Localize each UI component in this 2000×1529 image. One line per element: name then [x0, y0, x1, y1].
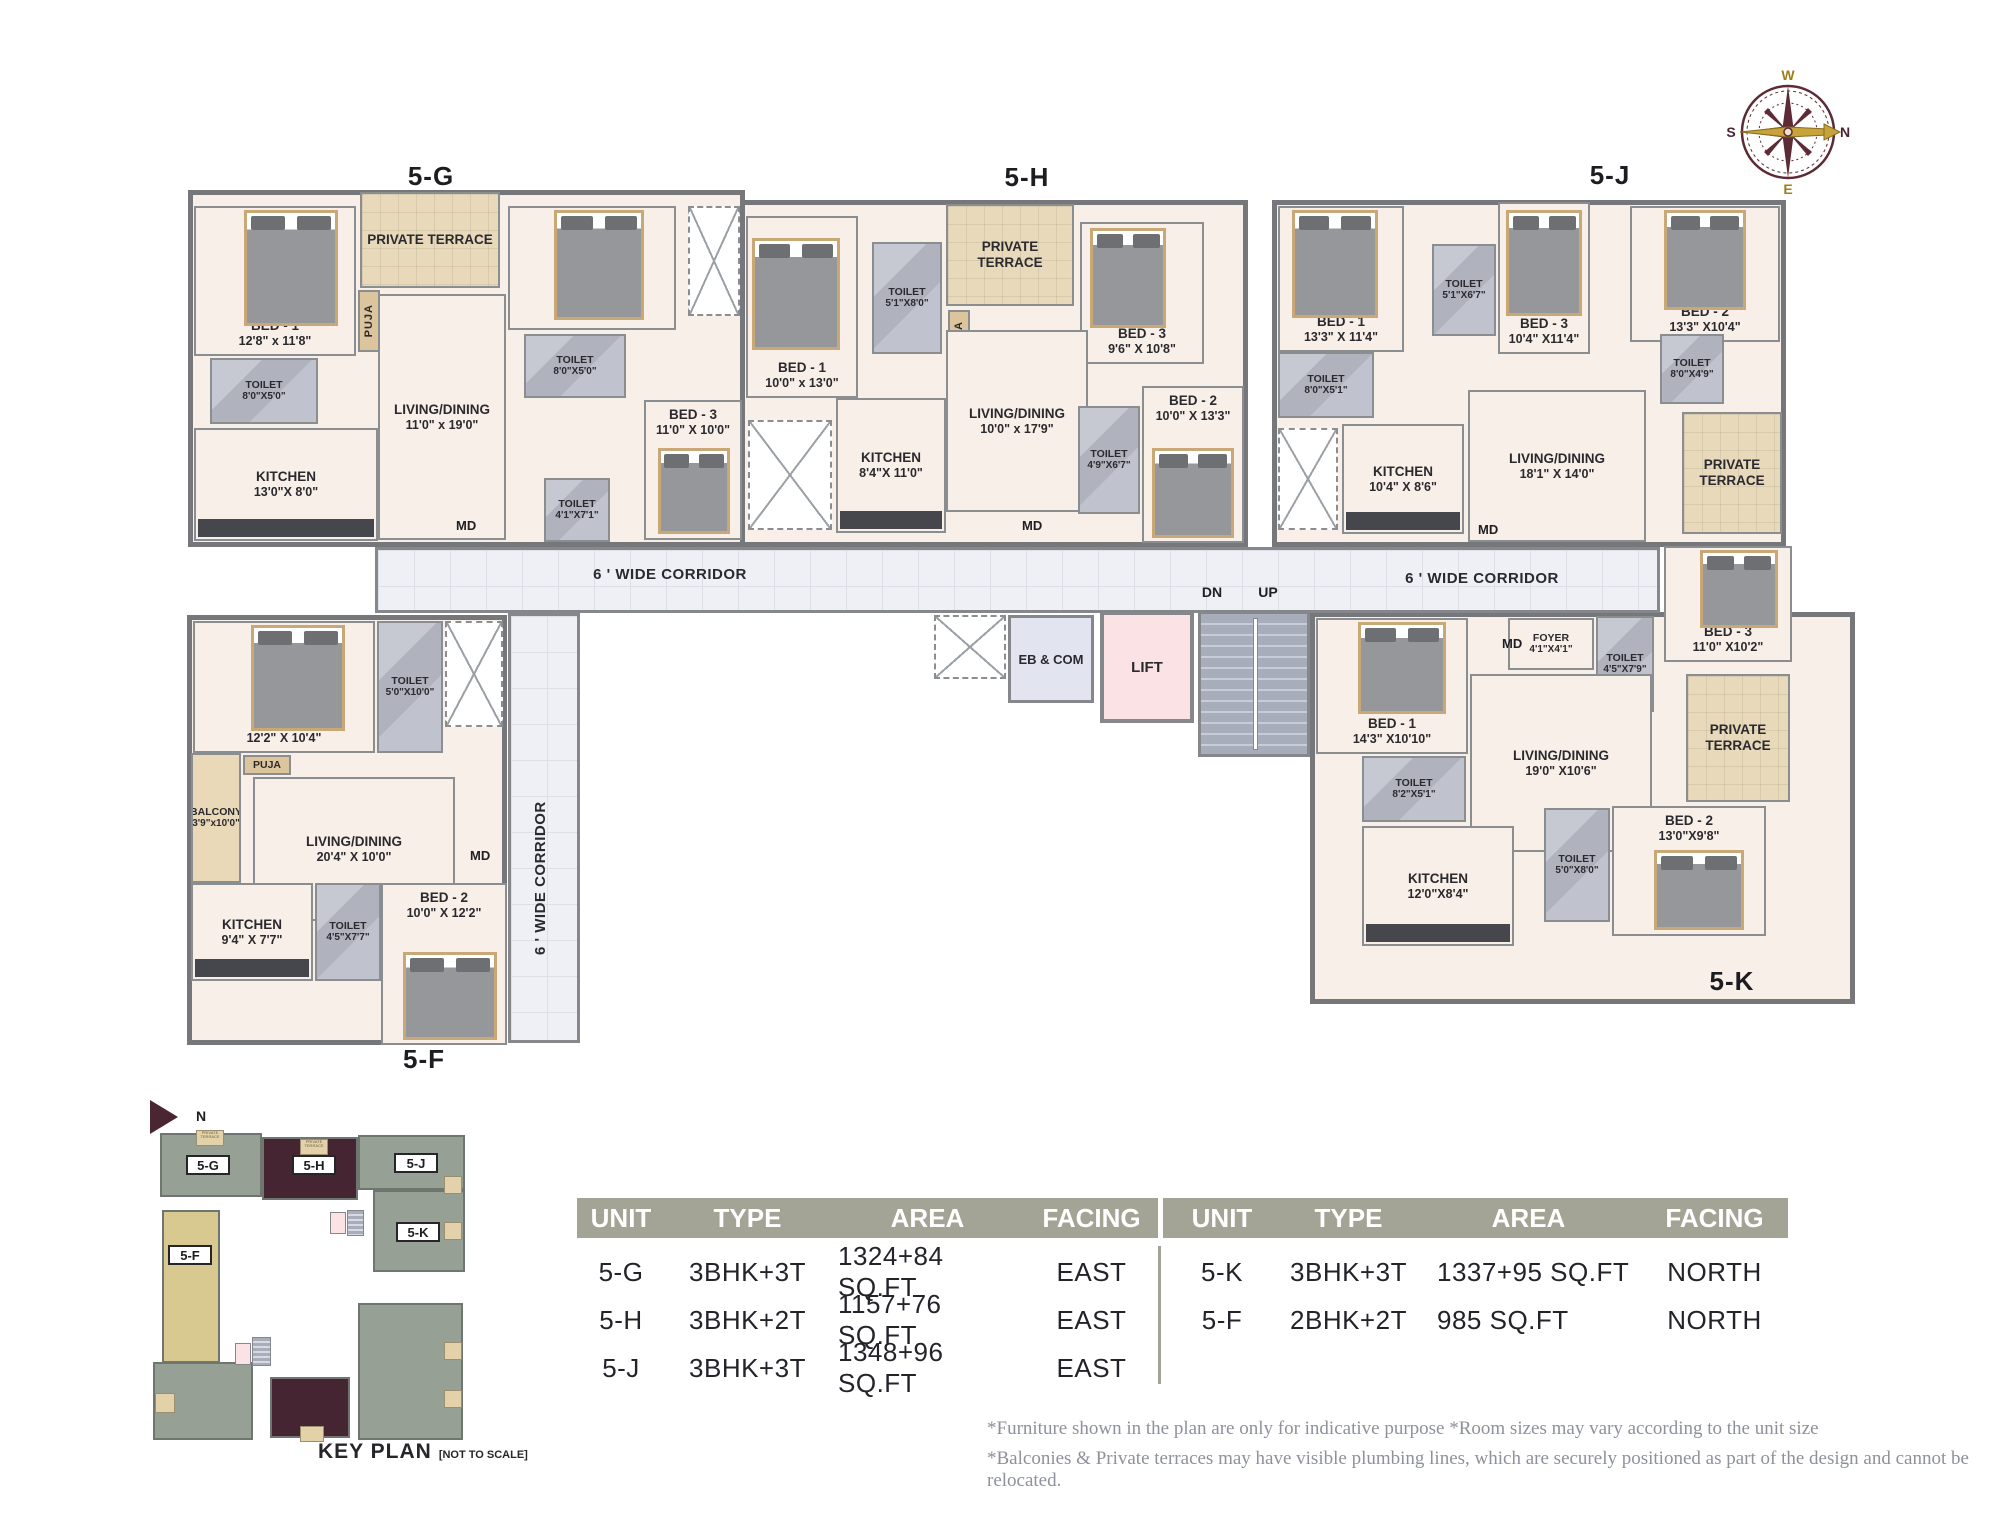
keyplan-terrace-chip: PRIVATE TERRACE: [196, 1130, 224, 1146]
cell-area: 1337+95 SQ.FT: [1416, 1257, 1641, 1288]
keyplan-block-bottom-right: [358, 1303, 463, 1440]
bed-icon: [1664, 210, 1746, 310]
bed-icon: [1090, 228, 1166, 328]
lift-label: LIFT: [1131, 659, 1163, 676]
keyplan-label-5j: 5-J: [394, 1153, 438, 1173]
bed-icon: [1700, 550, 1778, 628]
compass-e: E: [1783, 181, 1792, 196]
keyplan-label-5f: 5-F: [168, 1245, 212, 1265]
bed-icon: [1506, 210, 1582, 316]
5k-toilet3: TOILET5'0"X8'0": [1544, 808, 1610, 922]
5k-main-door-label: MD: [1502, 636, 1522, 651]
compass-rose: W E N S: [1724, 68, 1852, 196]
5f-toilet1: TOILET5'0"X10'0": [377, 621, 443, 753]
bed-icon: [752, 238, 840, 350]
5g-kitchen: KITCHEN13'0"X 8'0": [194, 428, 378, 541]
keyplan-block-5f: [162, 1210, 220, 1363]
bed-icon: [1292, 210, 1378, 318]
staircase: [1198, 611, 1310, 757]
5h-kitchen: KITCHEN8'4"X 11'0": [836, 398, 946, 533]
keyplan-north-arrow-icon: [150, 1100, 178, 1134]
5g-toilet3: TOILET4'1"X7'1": [544, 478, 610, 542]
bed-icon: [1152, 448, 1234, 538]
col-header-facing: FACING: [1641, 1203, 1788, 1234]
keyplan-title: KEY PLAN: [318, 1440, 432, 1464]
5g-puja: PUJA: [358, 290, 380, 352]
5h-main-door-label: MD: [1022, 518, 1042, 533]
unit-label-5h: 5-H: [992, 162, 1062, 193]
cell-area: 985 SQ.FT: [1416, 1305, 1641, 1336]
keyplan-terrace-chip: [444, 1390, 462, 1408]
keyplan-terrace-chip: [155, 1393, 175, 1413]
5g-toilet1: TOILET8'0"X5'0": [210, 358, 318, 424]
col-header-area: AREA: [830, 1203, 1025, 1234]
5j-toilet1: TOILET5'1"X6'7": [1432, 244, 1496, 336]
corridor-label-left: 6 ' WIDE CORRIDOR: [580, 566, 760, 583]
5g-private-terrace: PRIVATE TERRACE: [360, 192, 500, 288]
keyplan-stairs-icon: [347, 1210, 364, 1236]
table-row: 5-J 3BHK+3T 1348+96 SQ.FT EAST: [577, 1344, 1158, 1392]
cell-area: 1348+96 SQ.FT: [830, 1337, 1025, 1399]
5k-kitchen: KITCHEN12'0"X8'4": [1362, 826, 1514, 946]
5h-private-terrace: PRIVATE TERRACE: [946, 204, 1074, 306]
compass-n: N: [1840, 124, 1850, 140]
keyplan-lift-icon: [330, 1212, 346, 1234]
keyplan-terrace-chip: [444, 1222, 462, 1240]
5g-toilet2: TOILET8'0"X5'0": [524, 334, 626, 398]
table-left-header: UNIT TYPE AREA FACING: [577, 1198, 1158, 1238]
5j-toilet3: TOILET8'0"X4'9": [1660, 334, 1724, 404]
stairs-up-label: UP: [1248, 584, 1288, 600]
5j-kitchen: KITCHEN10'4" X 8'6": [1342, 424, 1464, 534]
bed-icon: [1654, 850, 1744, 930]
col-header-facing: FACING: [1025, 1203, 1158, 1234]
unit-label-5j: 5-J: [1575, 160, 1645, 191]
service-shaft: [934, 615, 1006, 679]
cell-unit: 5-G: [577, 1257, 665, 1288]
5f-shaft: [445, 621, 503, 727]
unit-table-right: UNIT TYPE AREA FACING 5-K 3BHK+3T 1337+9…: [1163, 1198, 1788, 1344]
col-header-unit: UNIT: [577, 1203, 665, 1234]
cell-type: 3BHK+3T: [665, 1257, 830, 1288]
cell-facing: EAST: [1025, 1353, 1158, 1384]
table-row: 5-K 3BHK+3T 1337+95 SQ.FT NORTH: [1163, 1248, 1788, 1296]
5j-living-dining: LIVING/DINING18'1" X 14'0": [1468, 390, 1646, 542]
5f-balcony: BALCONY3'9"x10'0": [191, 753, 241, 883]
unit-table-left: UNIT TYPE AREA FACING 5-G 3BHK+3T 1324+8…: [577, 1198, 1158, 1392]
5h-toilet2: TOILET4'9"X6'7": [1078, 406, 1140, 514]
unit-label-5g: 5-G: [396, 161, 466, 192]
bed-icon: [658, 448, 730, 534]
bed-icon: [1358, 622, 1446, 714]
cell-unit: 5-J: [577, 1353, 665, 1384]
5f-kitchen: KITCHEN9'4" X 7'7": [191, 883, 313, 981]
stairs-dn-label: DN: [1192, 584, 1232, 600]
5j-main-door-label: MD: [1478, 522, 1498, 537]
5f-main-door-label: MD: [470, 848, 490, 863]
5j-private-terrace: PRIVATE TERRACE: [1682, 412, 1782, 534]
bed-icon: [554, 210, 644, 320]
5g-main-door-label: MD: [456, 518, 476, 533]
eb-com-room: EB & COM: [1008, 615, 1094, 703]
5j-shaft: [1278, 428, 1338, 530]
5g-shaft: [688, 206, 740, 316]
keyplan-lift-icon: [235, 1343, 251, 1365]
keyplan-terrace-chip: [444, 1176, 462, 1194]
disclaimer-line-2: *Balconies & Private terraces may have v…: [987, 1448, 2000, 1492]
keyplan-north-label: N: [196, 1108, 206, 1124]
compass-s: S: [1726, 124, 1735, 140]
corridor-label-right: 6 ' WIDE CORRIDOR: [1392, 570, 1572, 587]
keyplan-label-5k: 5-K: [396, 1222, 440, 1242]
5j-toilet2: TOILET8'0"X5'1": [1278, 352, 1374, 418]
corridor-label-vertical: 6 ' WIDE CORRIDOR: [532, 725, 549, 955]
col-header-unit: UNIT: [1163, 1203, 1281, 1234]
col-header-area: AREA: [1416, 1203, 1641, 1234]
cell-facing: EAST: [1025, 1305, 1158, 1336]
keyplan-caption: KEY PLAN [NOT TO SCALE]: [318, 1440, 528, 1464]
5h-living-dining: LIVING/DINING10'0" x 17'9": [946, 330, 1088, 512]
lift: LIFT: [1100, 611, 1194, 723]
cell-facing: NORTH: [1641, 1305, 1788, 1336]
5h-toilet1: TOILET5'1"X8'0": [872, 242, 942, 354]
5g-living-dining: LIVING/DINING11'0" x 19'0": [378, 294, 506, 540]
cell-facing: EAST: [1025, 1257, 1158, 1288]
cell-type: 2BHK+2T: [1281, 1305, 1416, 1336]
disclaimer-line-1: *Furniture shown in the plan are only fo…: [987, 1418, 1819, 1440]
bed-icon: [244, 210, 338, 326]
keyplan-terrace-chip: [444, 1342, 462, 1360]
cell-type: 3BHK+3T: [665, 1353, 830, 1384]
cell-type: 3BHK+3T: [1281, 1257, 1416, 1288]
cell-facing: NORTH: [1641, 1257, 1788, 1288]
cell-type: 3BHK+2T: [665, 1305, 830, 1336]
keyplan-label-5g: 5-G: [186, 1155, 230, 1175]
cell-unit: 5-K: [1163, 1257, 1281, 1288]
keyplan-label-5h: 5-H: [292, 1155, 336, 1175]
keyplan-stairs-icon: [252, 1337, 271, 1366]
table-right-header: UNIT TYPE AREA FACING: [1163, 1198, 1788, 1238]
cell-unit: 5-F: [1163, 1305, 1281, 1336]
floor-plan-page: EB & COM LIFT DN UP 6 ' WIDE CORRIDOR 6 …: [0, 0, 2000, 1529]
5f-puja: PUJA: [243, 755, 291, 775]
cell-unit: 5-H: [577, 1305, 665, 1336]
compass-w: W: [1781, 68, 1795, 83]
5k-private-terrace: PRIVATE TERRACE: [1686, 674, 1790, 802]
unit-label-5k: 5-K: [1697, 966, 1767, 997]
5f-toilet2: TOILET4'5"X7'7": [315, 883, 381, 981]
col-header-type: TYPE: [1281, 1203, 1416, 1234]
table-row: 5-F 2BHK+2T 985 SQ.FT NORTH: [1163, 1296, 1788, 1344]
keyplan-scale-note: [NOT TO SCALE]: [439, 1449, 528, 1461]
keyplan-terrace-chip: PRIVATE TERRACE: [300, 1139, 328, 1155]
table-divider: [1158, 1246, 1161, 1384]
5k-toilet2: TOILET8'2"X5'1": [1362, 756, 1466, 822]
unit-label-5f: 5-F: [389, 1044, 459, 1075]
bed-icon: [251, 625, 345, 731]
eb-com-label: EB & COM: [1019, 652, 1084, 667]
col-header-type: TYPE: [665, 1203, 830, 1234]
bed-icon: [403, 952, 497, 1040]
5h-shaft: [748, 420, 832, 530]
